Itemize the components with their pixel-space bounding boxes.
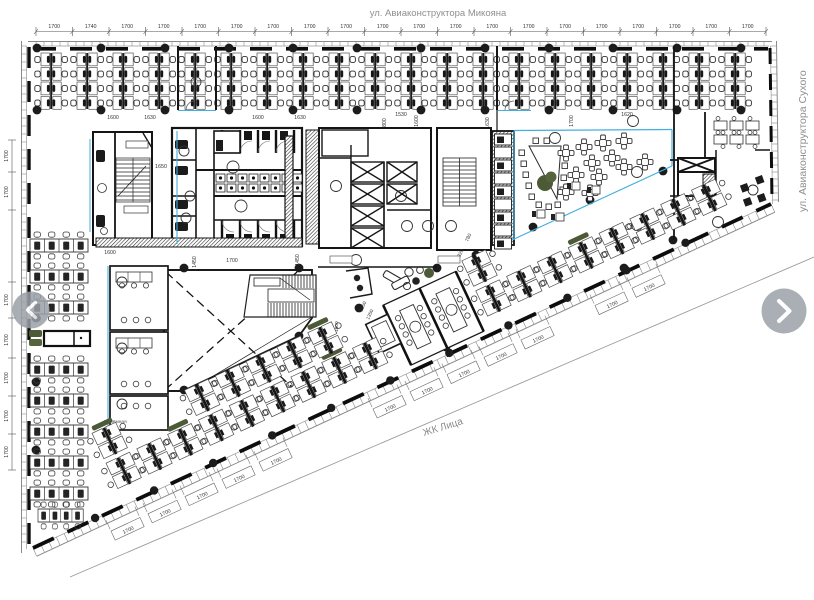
svg-text:1700: 1700	[413, 24, 425, 30]
svg-text:1700: 1700	[4, 334, 10, 346]
svg-text:1700: 1700	[705, 24, 717, 30]
svg-text:1700: 1700	[4, 446, 10, 458]
svg-text:1700: 1700	[267, 24, 279, 30]
svg-text:1700: 1700	[4, 150, 10, 162]
svg-text:1700: 1700	[48, 24, 60, 30]
svg-text:1700: 1700	[340, 24, 352, 30]
svg-text:1700: 1700	[4, 410, 10, 422]
svg-text:1700: 1700	[569, 115, 575, 127]
svg-text:1650: 1650	[155, 164, 167, 170]
svg-text:1700: 1700	[377, 24, 389, 30]
svg-text:1700: 1700	[632, 24, 644, 30]
svg-text:1700: 1700	[121, 24, 133, 30]
svg-text:1700: 1700	[158, 24, 170, 30]
svg-text:1700: 1700	[559, 24, 571, 30]
svg-text:1450: 1450	[295, 254, 301, 266]
svg-text:1740: 1740	[85, 24, 97, 30]
svg-text:1700: 1700	[194, 24, 206, 30]
svg-text:1450: 1450	[192, 256, 198, 268]
svg-text:1600: 1600	[104, 250, 116, 256]
svg-text:1630: 1630	[144, 115, 156, 121]
svg-text:1700: 1700	[4, 186, 10, 198]
svg-text:1700: 1700	[4, 294, 10, 306]
svg-text:1700: 1700	[231, 24, 243, 30]
svg-text:1700: 1700	[742, 24, 754, 30]
svg-text:1700: 1700	[450, 24, 462, 30]
svg-text:1700: 1700	[226, 258, 238, 264]
svg-text:1700: 1700	[669, 24, 681, 30]
svg-text:1700: 1700	[4, 372, 10, 384]
svg-text:1700: 1700	[596, 24, 608, 30]
svg-text:1700: 1700	[486, 24, 498, 30]
svg-text:1600: 1600	[252, 115, 264, 121]
svg-text:ул. Авиаконструктора Сухого: ул. Авиаконструктора Сухого	[797, 70, 809, 212]
svg-text:1700: 1700	[523, 24, 535, 30]
svg-text:1630: 1630	[294, 115, 306, 121]
svg-text:1620: 1620	[621, 112, 633, 118]
svg-text:1600: 1600	[107, 115, 119, 121]
svg-text:1700: 1700	[304, 24, 316, 30]
svg-text:ул. Авиаконструктора Микояна: ул. Авиаконструктора Микояна	[370, 8, 507, 19]
svg-text:1600: 1600	[414, 115, 420, 127]
svg-text:1530: 1530	[395, 112, 407, 118]
